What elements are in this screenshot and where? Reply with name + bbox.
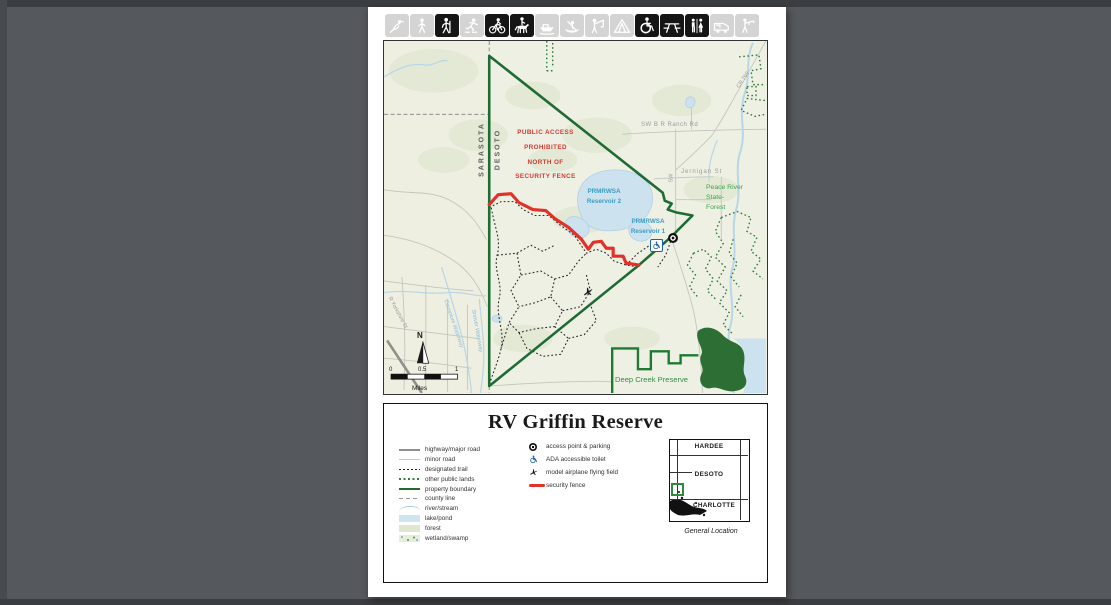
general-location-inset: HARDEE DESOTO CHARLOTTE	[669, 439, 750, 522]
legend-item-highway: highway/major road	[399, 445, 480, 455]
legend-label: designated trail	[425, 466, 468, 473]
peace-river-forest-label: Peace RiverState-Forest	[706, 183, 743, 213]
public-access-warning: PUBLIC ACCESSPROHIBITED NORTH OFSECURITY…	[498, 126, 593, 185]
scale-tick-05: 0.5	[418, 367, 426, 373]
fishing-icon	[585, 14, 609, 37]
viewer-left-edge	[0, 0, 7, 605]
legend-item-publiclands: other public lands	[399, 474, 480, 484]
access-point-icon	[668, 233, 678, 243]
legend-label: lake/pond	[425, 515, 452, 522]
legend-item-ada: ADA accessible toilet	[529, 453, 618, 466]
general-location-caption: General Location	[656, 528, 766, 535]
inset-county-hardee: HARDEE	[677, 443, 741, 450]
county-label-desoto: DESOTO	[495, 112, 502, 188]
trail-swatch	[399, 469, 420, 471]
legend-label: security fence	[546, 482, 585, 489]
reservoir1-label: PRMRWSAReservoir 1	[620, 217, 676, 236]
horseback-riding-icon	[510, 14, 534, 37]
river-swatch	[399, 506, 420, 512]
ranch-rd-label: SW B R Ranch Rd	[641, 122, 698, 128]
county-label-sarasota: SARASOTA	[479, 112, 486, 188]
legend-label: access point & parking	[546, 443, 610, 450]
ada-symbol	[529, 455, 538, 464]
fence-symbol	[529, 484, 545, 487]
inset-county-charlotte: CHARLOTTE	[682, 502, 746, 509]
boating-icon	[535, 14, 559, 37]
ada-toilet-icon	[650, 239, 663, 252]
map-title: RV Griffin Reserve	[384, 411, 767, 434]
legend-label: property boundary	[425, 486, 476, 493]
legend-label: ADA accessible toilet	[546, 456, 606, 463]
legend-label: forest	[425, 525, 441, 532]
lake-swatch	[399, 515, 420, 522]
walking-icon	[410, 14, 434, 37]
publiclands-swatch	[399, 478, 420, 480]
biking-icon	[485, 14, 509, 37]
legend-item-minor: minor road	[399, 455, 480, 465]
ada-accessible-icon	[635, 14, 659, 37]
legend-panel: RV Griffin Reserve highway/major roadmin…	[383, 403, 768, 583]
scale-unit-label: Miles	[412, 385, 427, 392]
legend-item-fence: security fence	[529, 479, 618, 492]
legend-label: wetland/swamp	[425, 535, 468, 542]
wetland-swatch	[399, 535, 420, 542]
jernigan-st-label: Jernigan St	[681, 169, 722, 175]
legend-label: river/stream	[425, 505, 458, 512]
legend-label: other public lands	[425, 476, 474, 483]
legend-lines: highway/major roadminor roaddesignated t…	[399, 445, 480, 543]
legend-label: highway/major road	[425, 446, 480, 453]
airplane-symbol	[528, 467, 540, 479]
legend-item-airplane: model airplane flying field	[529, 466, 618, 479]
legend-item-wetland: wetland/swamp	[399, 533, 480, 543]
reserve-map: PUBLIC ACCESSPROHIBITED NORTH OFSECURITY…	[383, 40, 768, 395]
inset-hardee-desoto-line	[670, 455, 748, 456]
viewer-bottom-edge	[0, 599, 1111, 605]
boundary-swatch	[399, 488, 420, 491]
legend-label: minor road	[425, 456, 455, 463]
minor-swatch	[399, 459, 420, 460]
legend-label: model airplane flying field	[546, 469, 618, 476]
scale-tick-1: 1	[455, 367, 458, 373]
document-page: PUBLIC ACCESSPROHIBITED NORTH OFSECURITY…	[368, 7, 786, 597]
camping-icon	[610, 14, 634, 37]
rv-camping-icon	[710, 14, 734, 37]
county-swatch	[399, 498, 420, 499]
reservoir2-label: PRMRWSAReservoir 2	[574, 187, 634, 206]
legend-item-forest: forest	[399, 523, 480, 533]
viewer-top-edge	[0, 0, 1111, 7]
inset-desoto-charlotte-line	[670, 499, 748, 500]
scale-tick-0: 0	[389, 367, 392, 373]
activity-toolbar	[385, 14, 759, 37]
reserve-location-marker	[671, 483, 684, 496]
restrooms-icon	[685, 14, 709, 37]
legend-points: access point & parkingADA accessible toi…	[529, 440, 618, 492]
bird-watching-icon	[385, 14, 409, 37]
legend-label: county line	[425, 495, 455, 502]
legend-item-boundary: property boundary	[399, 484, 480, 494]
legend-item-access: access point & parking	[529, 440, 618, 453]
legend-item-trail: designated trail	[399, 465, 480, 475]
inset-county-desoto: DESOTO	[677, 471, 741, 478]
legend-item-lake: lake/pond	[399, 514, 480, 524]
skating-icon	[460, 14, 484, 37]
canoeing-icon	[560, 14, 584, 37]
map-canvas	[384, 41, 766, 393]
picnicking-icon	[660, 14, 684, 37]
deep-creek-preserve-label: Deep Creek Preserve	[615, 375, 688, 384]
forest-swatch	[399, 525, 420, 532]
hiking-icon	[435, 14, 459, 37]
sw-road-label: SW	[668, 174, 674, 183]
legend-item-county: county line	[399, 494, 480, 504]
legend-item-river: river/stream	[399, 504, 480, 514]
hunting-icon	[735, 14, 759, 37]
highway-swatch	[399, 449, 420, 451]
access-point-symbol	[529, 443, 537, 451]
north-arrow-label: N	[417, 331, 423, 340]
